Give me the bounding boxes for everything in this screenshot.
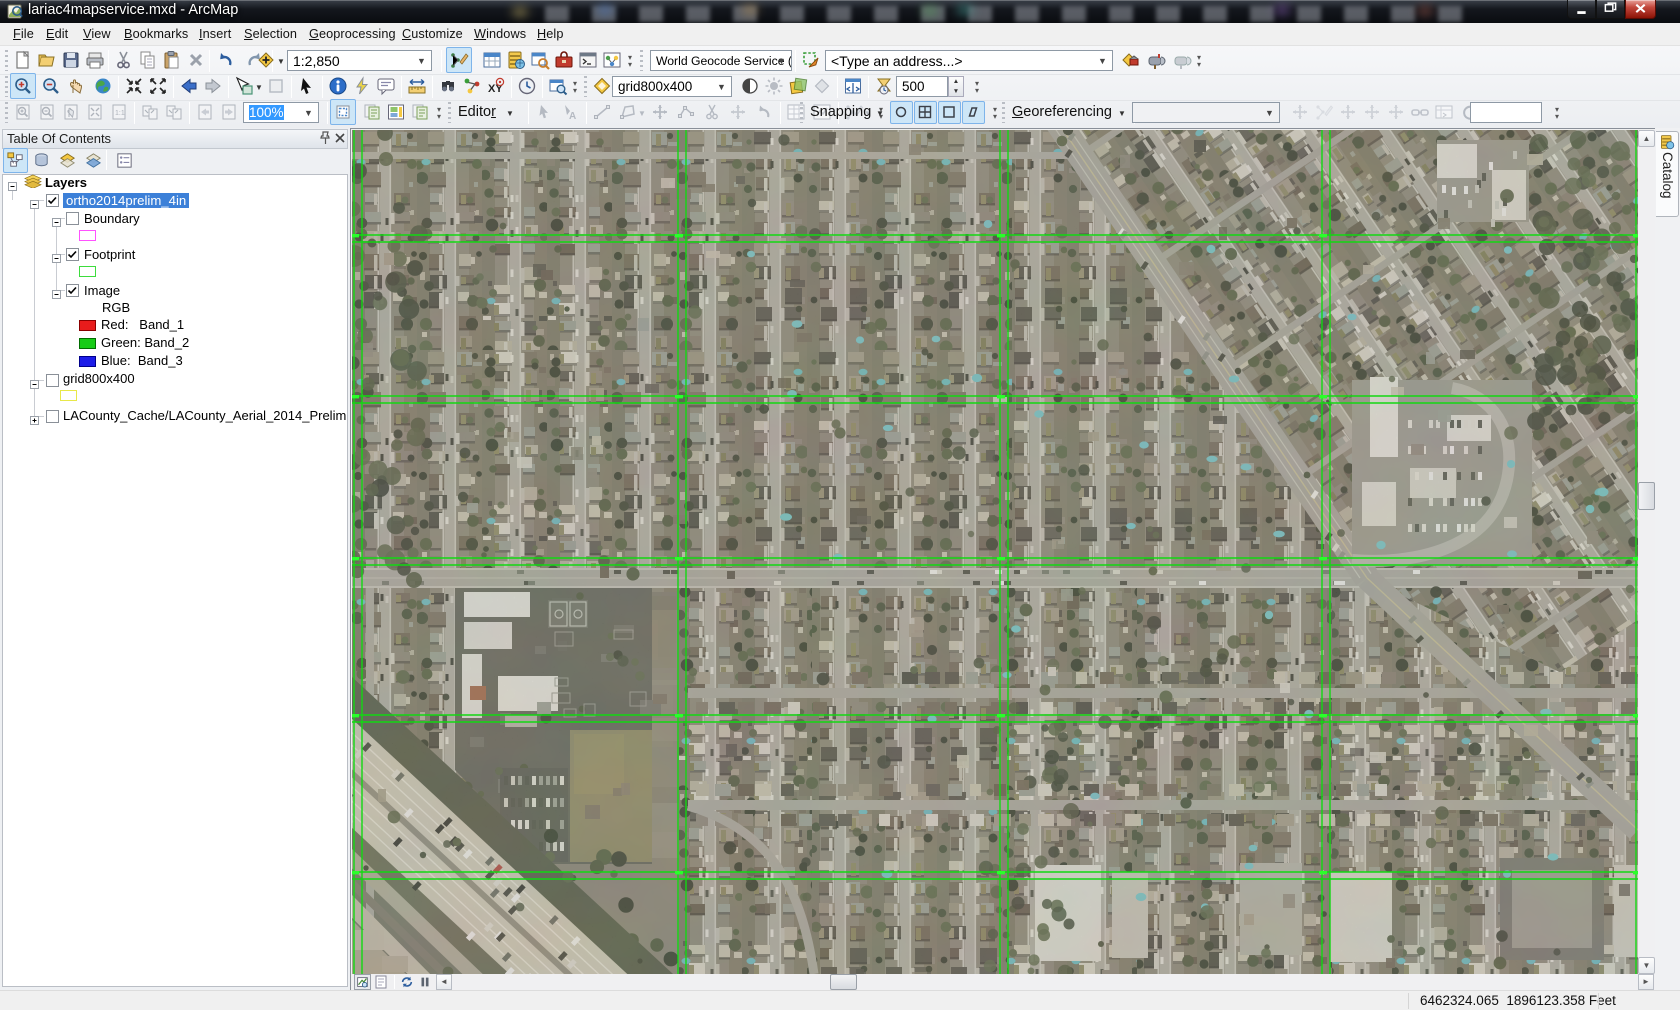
svg-text:XY: XY: [488, 83, 503, 95]
svg-text:A: A: [569, 111, 576, 122]
svg-text:1:1: 1:1: [115, 110, 125, 117]
